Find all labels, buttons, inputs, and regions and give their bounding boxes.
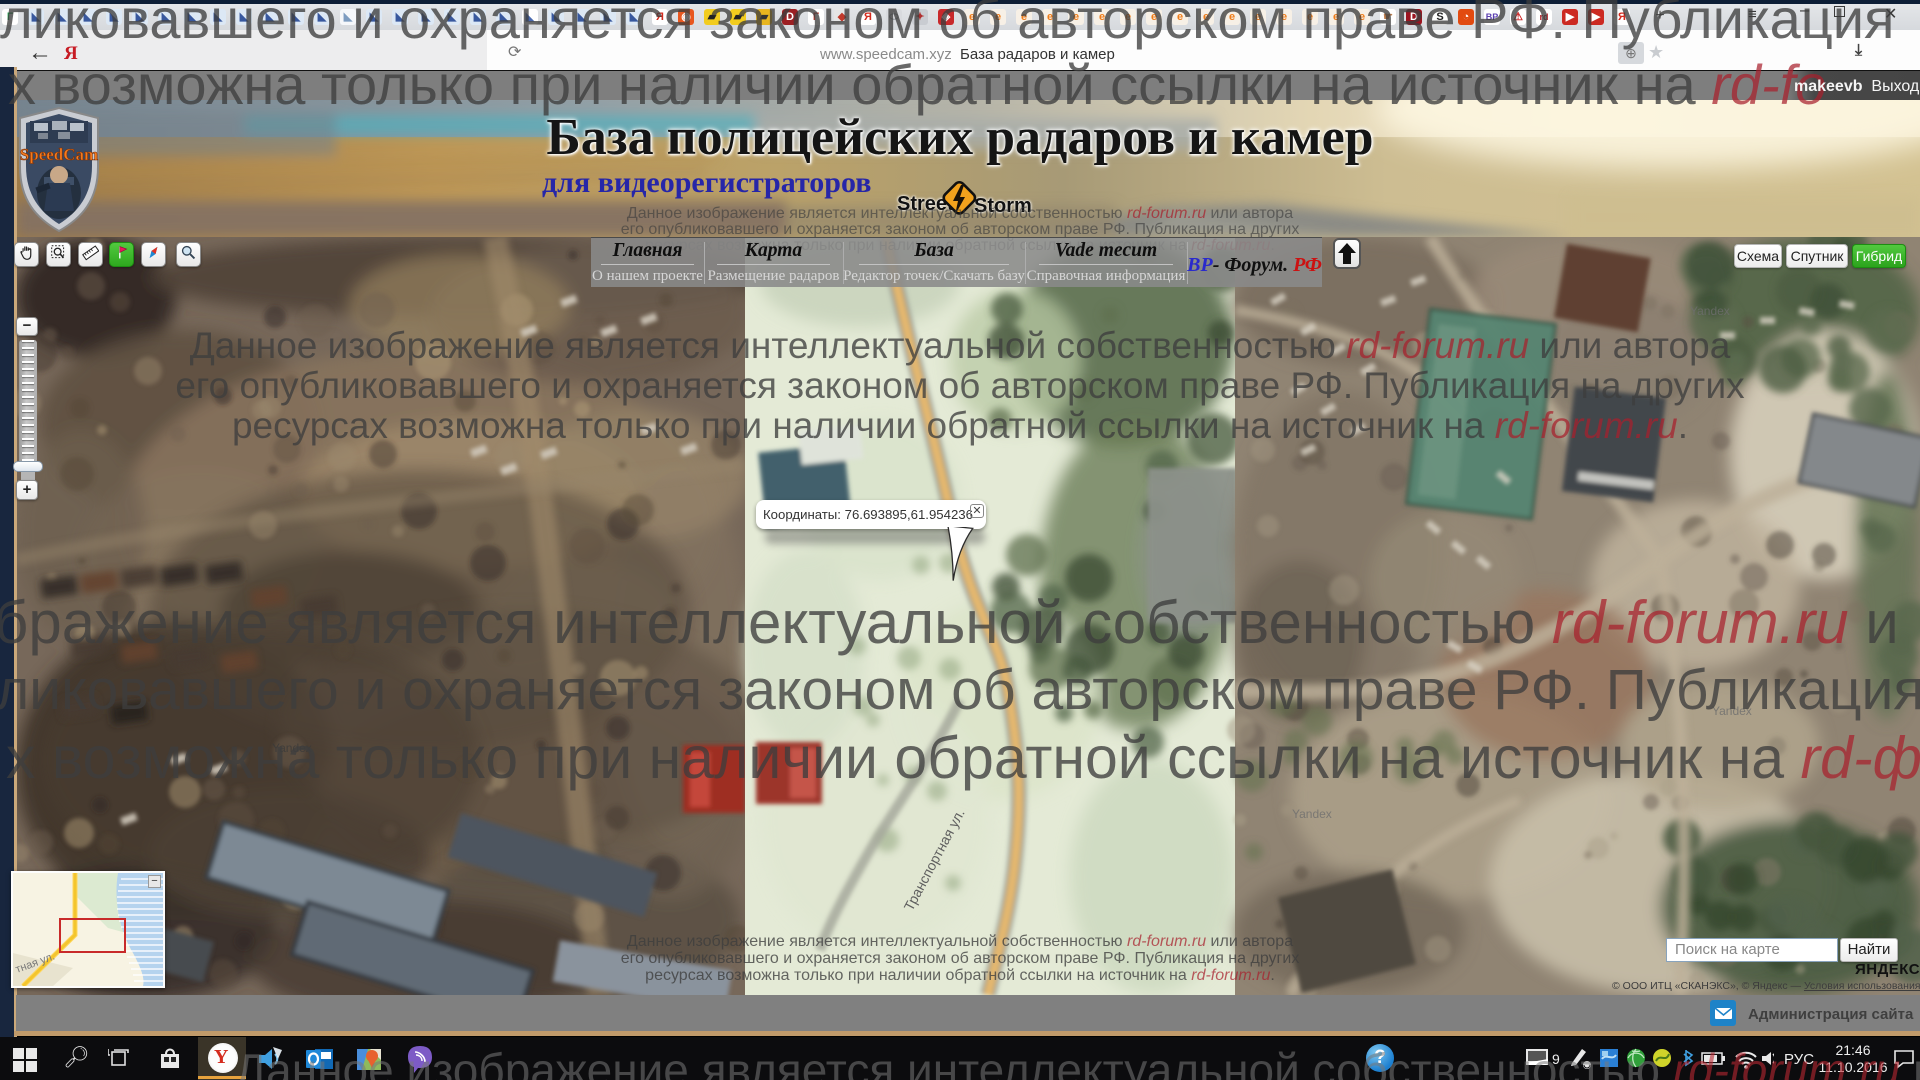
svg-text:Yandex: Yandex xyxy=(1712,704,1752,718)
svg-text:Yandex: Yandex xyxy=(272,741,312,755)
svg-text:SpeedCam: SpeedCam xyxy=(20,145,98,164)
svg-text:Yandex: Yandex xyxy=(1690,304,1730,318)
svg-text:Yandex: Yandex xyxy=(1292,807,1332,821)
